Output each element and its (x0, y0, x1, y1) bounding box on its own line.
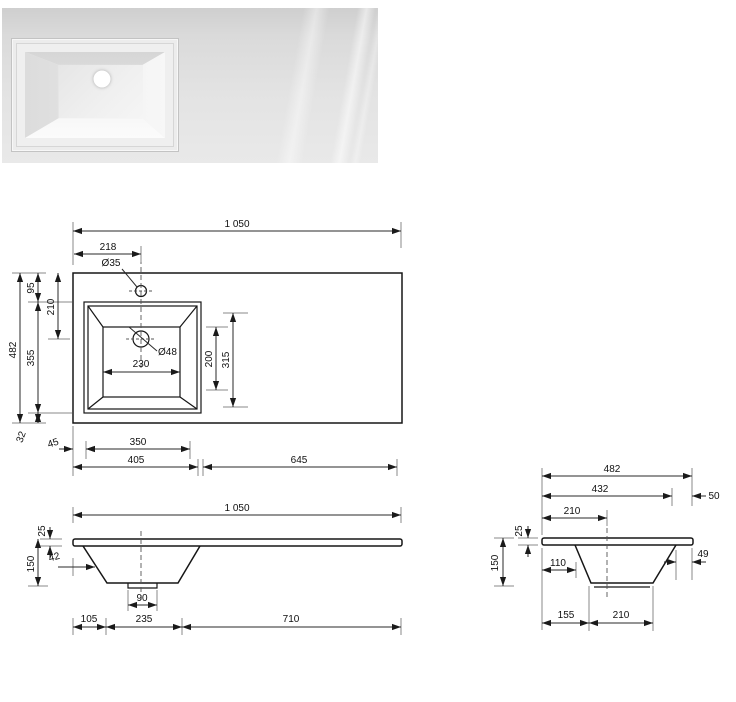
dim-plan-total-width: 1 050 (73, 219, 401, 265)
dim-label: 405 (128, 455, 145, 466)
dim-label: 315 (221, 351, 232, 368)
dim-label: 150 (26, 555, 37, 572)
dim-label: 50 (708, 491, 720, 502)
dim-label: 45 (46, 437, 60, 451)
dim-label: 210 (564, 506, 581, 517)
plan-bowl-rim (88, 306, 197, 409)
dim-bowl-depth: 355 (26, 302, 72, 413)
front-bowl-profile (83, 546, 200, 583)
dim-label: 235 (136, 614, 153, 625)
dim-plan-depth: 482 (8, 273, 46, 423)
dim-label: 1 050 (224, 503, 249, 514)
dim-right-section: 645 (203, 455, 397, 476)
technical-drawing: 1 050 218 Ø35 Ø48 230 482 95 (0, 0, 736, 702)
dim-label: 210 (613, 610, 630, 621)
dim-bowl-inner-width: 230 (103, 359, 180, 372)
dim-label: 42 (48, 551, 62, 565)
dim-side-edge-to-center: 210 (542, 506, 607, 526)
dim-front-drain-width: 90 (128, 590, 157, 611)
dim-label: 150 (490, 554, 501, 571)
plan-bowl-outer (84, 302, 201, 413)
dim-label: 25 (514, 525, 525, 537)
dim-bowl-to-front: 32 (15, 413, 38, 444)
side-view: 482 432 50 210 25 150 (490, 464, 720, 631)
dim-front-bottom-row: 105 235 710 (73, 614, 401, 635)
dim-label: 482 (8, 341, 19, 358)
dim-label: Ø48 (158, 347, 177, 358)
dim-label: 355 (26, 349, 37, 366)
plan-view: 1 050 218 Ø35 Ø48 230 482 95 (8, 219, 402, 476)
dim-left-margin: 45 (46, 426, 99, 476)
callout-drain-dia: Ø48 (129, 327, 177, 358)
dim-edge-to-drain: 210 (46, 273, 70, 339)
dim-label: 1 050 (224, 219, 249, 230)
dim-label: 218 (100, 242, 117, 253)
dim-side-height: 150 (490, 538, 514, 586)
dim-side-top-thickness: 25 (514, 525, 538, 557)
dim-label: 210 (46, 298, 57, 315)
dim-label: Ø35 (102, 258, 121, 269)
dim-label: 645 (291, 455, 308, 466)
dim-label: 90 (136, 593, 148, 604)
dim-label: 25 (37, 525, 48, 537)
dim-side-slope-front: 110 (542, 558, 576, 578)
dim-front-total-width: 1 050 (73, 503, 401, 523)
dim-side-bottom-row: 155 210 (542, 586, 653, 631)
dim-label: 32 (15, 430, 29, 445)
dim-label: 105 (81, 614, 98, 625)
dim-left-section: 405 (73, 455, 198, 476)
dim-label: 200 (204, 350, 215, 367)
plan-countertop-outline (73, 273, 402, 423)
front-slab (73, 539, 402, 546)
dim-label: 482 (604, 464, 621, 475)
dim-label: 110 (550, 558, 566, 569)
dim-side-front-section: 432 50 (542, 484, 720, 506)
dim-label: 432 (592, 484, 609, 495)
side-bowl-profile (575, 545, 676, 583)
dim-side-depth: 482 (542, 464, 692, 476)
dim-label: 155 (558, 610, 575, 621)
dim-label: 95 (26, 282, 37, 294)
front-view: 1 050 25 150 42 90 (26, 503, 402, 635)
dim-label: 49 (697, 549, 709, 560)
dim-label: 710 (283, 614, 300, 625)
dim-label: 350 (130, 437, 147, 448)
dim-edge-to-bowl: 95 (26, 273, 72, 302)
plan-bowl-slopes (88, 306, 197, 409)
dim-label: 230 (133, 359, 150, 370)
side-slab (542, 538, 693, 545)
